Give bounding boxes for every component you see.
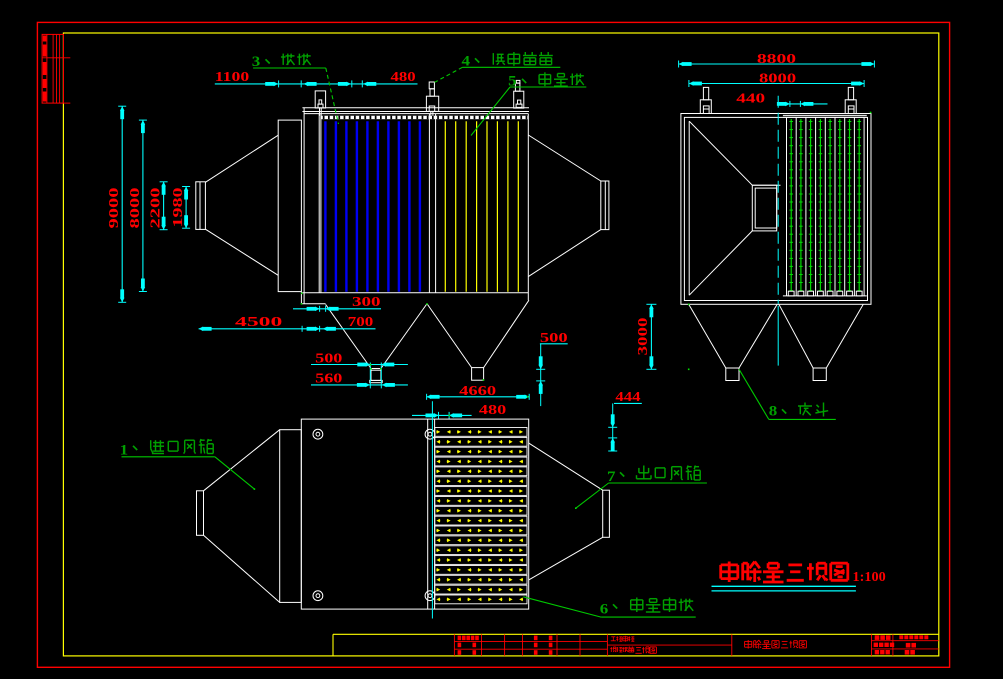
svg-text:1980: 1980 xyxy=(170,187,185,227)
svg-text:480: 480 xyxy=(479,402,507,417)
svg-text:4500: 4500 xyxy=(235,314,283,329)
svg-text:6: 6 xyxy=(600,602,609,618)
svg-text:500: 500 xyxy=(540,330,568,345)
svg-text:1100: 1100 xyxy=(215,69,250,84)
svg-text:8000: 8000 xyxy=(759,72,796,87)
svg-text:480: 480 xyxy=(391,69,416,84)
svg-text:8800: 8800 xyxy=(757,52,796,67)
svg-text:300: 300 xyxy=(352,294,381,309)
svg-text:8: 8 xyxy=(769,404,778,420)
svg-text:444: 444 xyxy=(615,389,640,404)
svg-text:4660: 4660 xyxy=(459,384,496,399)
svg-text:560: 560 xyxy=(315,371,343,386)
svg-text:440: 440 xyxy=(736,92,765,107)
svg-text:1: 1 xyxy=(120,443,129,459)
svg-text:700: 700 xyxy=(348,314,374,329)
svg-text:2200: 2200 xyxy=(148,187,163,228)
svg-text:3000: 3000 xyxy=(635,317,650,355)
svg-text:9000: 9000 xyxy=(106,187,121,228)
svg-text:1:100: 1:100 xyxy=(853,569,886,584)
svg-text:500: 500 xyxy=(315,351,343,366)
svg-text:8000: 8000 xyxy=(127,187,142,228)
